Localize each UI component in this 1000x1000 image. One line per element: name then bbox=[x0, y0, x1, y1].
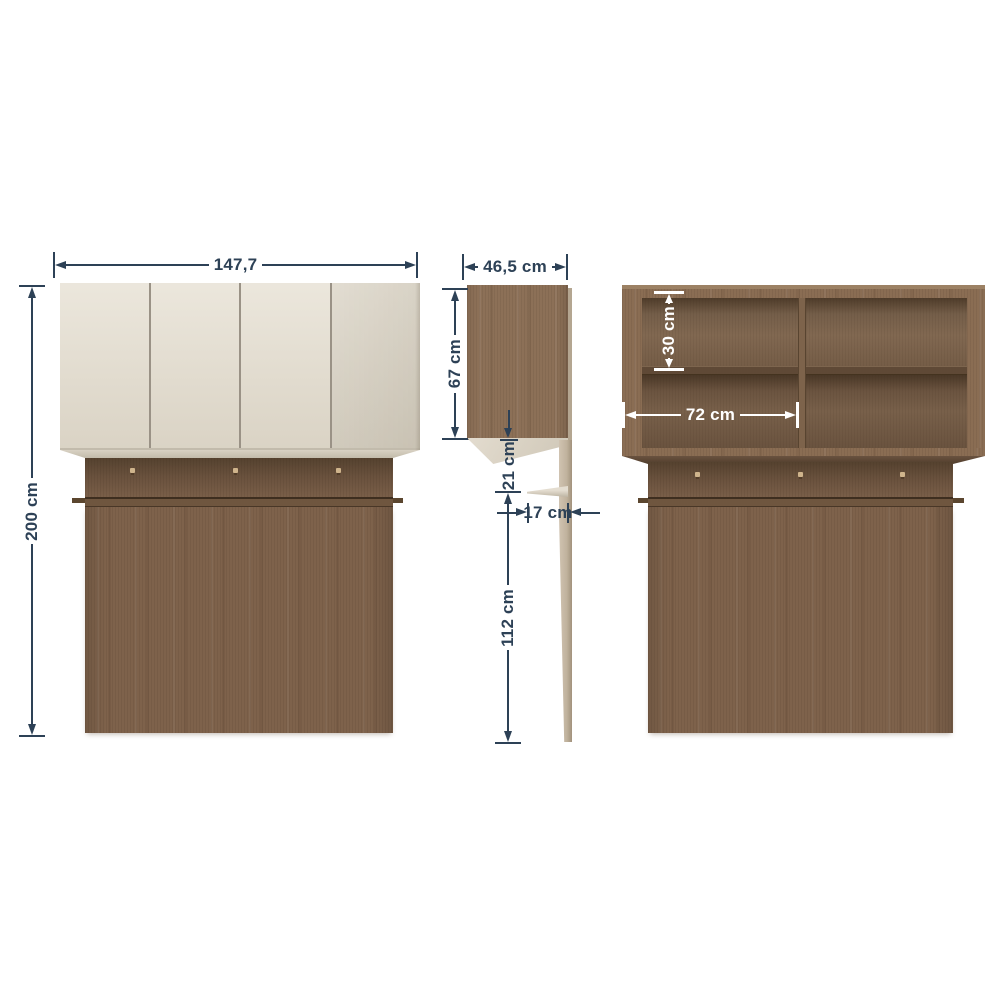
cabinet-side-shade bbox=[415, 283, 420, 450]
side-gap-label: 21 cm bbox=[499, 441, 519, 490]
coat-hook bbox=[336, 468, 341, 473]
compartment-top-right bbox=[806, 298, 967, 366]
upper-cabinet-side bbox=[467, 285, 568, 440]
rail-end bbox=[72, 498, 85, 503]
interior-width-label: 72 cm bbox=[686, 405, 735, 425]
interior-shelf-height-label: 30 cm bbox=[659, 306, 679, 355]
cabinet-door bbox=[151, 283, 240, 448]
coat-hook bbox=[233, 468, 238, 473]
side-shelf-depth-label: 17 cm bbox=[523, 503, 572, 523]
lower-back-panel bbox=[85, 507, 393, 733]
rail-shelf-side bbox=[527, 486, 568, 497]
side-upper-height-label: 67 cm bbox=[445, 339, 465, 388]
center-divider bbox=[798, 298, 806, 448]
front-view bbox=[0, 0, 440, 1000]
side-view bbox=[440, 0, 610, 1000]
rail-end bbox=[953, 498, 964, 503]
lower-back-panel-side bbox=[559, 440, 572, 742]
front-width-label: 147,7 bbox=[214, 255, 258, 275]
interior-width-dimension: 72 cm bbox=[622, 402, 799, 428]
lower-back-panel bbox=[648, 507, 953, 733]
front-height-label: 200 cm bbox=[22, 482, 42, 541]
side-lower-height-label: 112 cm bbox=[498, 589, 518, 647]
side-upper-height-dimension: 67 cm bbox=[442, 288, 468, 440]
frame-right bbox=[967, 289, 985, 455]
coat-hook bbox=[130, 468, 135, 473]
front-height-dimension: 200 cm bbox=[19, 285, 45, 737]
hanger-rail bbox=[85, 497, 393, 507]
cabinet-door bbox=[332, 283, 421, 448]
frame-left bbox=[622, 289, 642, 455]
side-depth-label: 46,5 cm bbox=[483, 257, 547, 277]
coat-hook bbox=[695, 472, 700, 477]
back-panel-edge bbox=[568, 288, 572, 440]
cabinet-door bbox=[241, 283, 330, 448]
frame-bottom bbox=[622, 448, 985, 456]
front-width-dimension: 147,7 bbox=[53, 252, 418, 278]
compartment-bottom-right bbox=[806, 375, 967, 448]
interior-view bbox=[610, 0, 1000, 1000]
upper-cabinet bbox=[60, 283, 420, 450]
hook-panel bbox=[648, 462, 953, 498]
hook-panel bbox=[85, 458, 393, 498]
cabinet-underside bbox=[60, 450, 420, 458]
rail-end bbox=[393, 498, 403, 503]
interior-shelf-height-dimension: 30 cm bbox=[654, 291, 684, 371]
side-lower-height-dimension: 112 cm bbox=[495, 491, 521, 744]
dimension-diagram: 147,7 200 cm 46,5 cm 67 cm 21 cm 112 cm bbox=[0, 0, 1000, 1000]
cabinet-door bbox=[60, 283, 149, 448]
hanger-rail bbox=[648, 497, 953, 507]
side-depth-dimension: 46,5 cm bbox=[462, 254, 568, 280]
coat-hook bbox=[900, 472, 905, 477]
coat-hook bbox=[798, 472, 803, 477]
